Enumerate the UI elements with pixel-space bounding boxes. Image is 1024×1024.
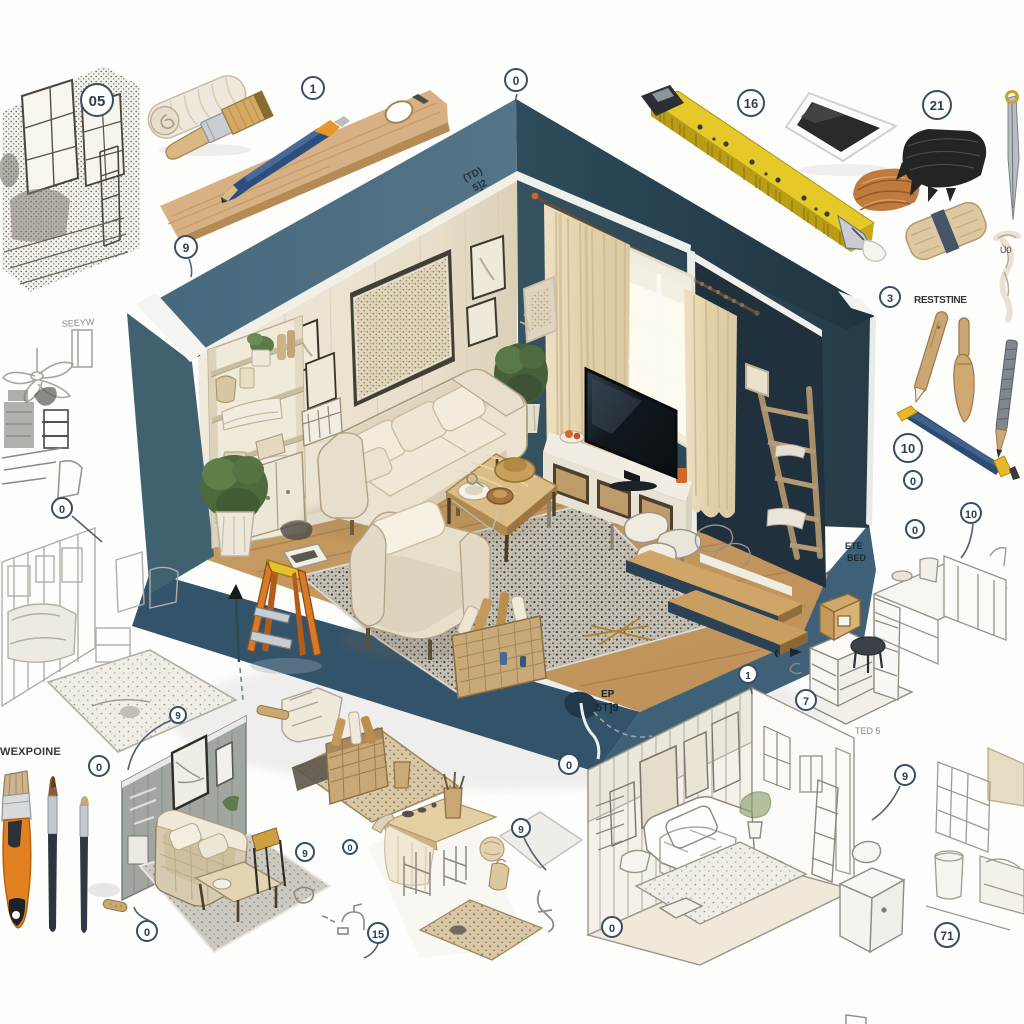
svg-text:1: 1 — [310, 82, 317, 96]
svg-text:3: 3 — [887, 293, 893, 305]
svg-text:0: 0 — [144, 927, 150, 939]
svg-text:BED: BED — [847, 553, 867, 563]
svg-text:7: 7 — [803, 696, 809, 708]
svg-text:9: 9 — [302, 849, 308, 860]
svg-text:EP: EP — [601, 689, 615, 700]
svg-text:21: 21 — [930, 98, 944, 113]
svg-text:71: 71 — [940, 929, 954, 943]
svg-text:05: 05 — [89, 93, 106, 110]
svg-text:U0: U0 — [1000, 245, 1012, 255]
svg-text:0: 0 — [910, 476, 916, 488]
svg-text:9: 9 — [175, 711, 181, 722]
svg-text:1: 1 — [745, 671, 751, 682]
svg-text:0: 0 — [912, 525, 918, 537]
svg-text:9: 9 — [518, 825, 524, 836]
svg-text:TED 5: TED 5 — [855, 726, 881, 736]
svg-text:0: 0 — [513, 74, 520, 88]
svg-text:10: 10 — [965, 509, 977, 521]
svg-text:0: 0 — [59, 504, 65, 516]
svg-text:0: 0 — [566, 760, 572, 772]
svg-text:5T]9: 5T]9 — [596, 702, 619, 714]
svg-text:15: 15 — [372, 929, 384, 941]
svg-text:9: 9 — [902, 771, 908, 783]
svg-text:16: 16 — [744, 96, 758, 111]
svg-text:10: 10 — [901, 441, 915, 456]
svg-text:RESTSTINE: RESTSTINE — [914, 295, 967, 306]
svg-text:WEXPOINE: WEXPOINE — [0, 746, 61, 758]
svg-text:0: 0 — [96, 762, 102, 774]
svg-text:0: 0 — [347, 843, 352, 853]
svg-text:0: 0 — [609, 923, 615, 935]
svg-text:9: 9 — [183, 241, 190, 255]
svg-text:ETE: ETE — [845, 541, 863, 551]
